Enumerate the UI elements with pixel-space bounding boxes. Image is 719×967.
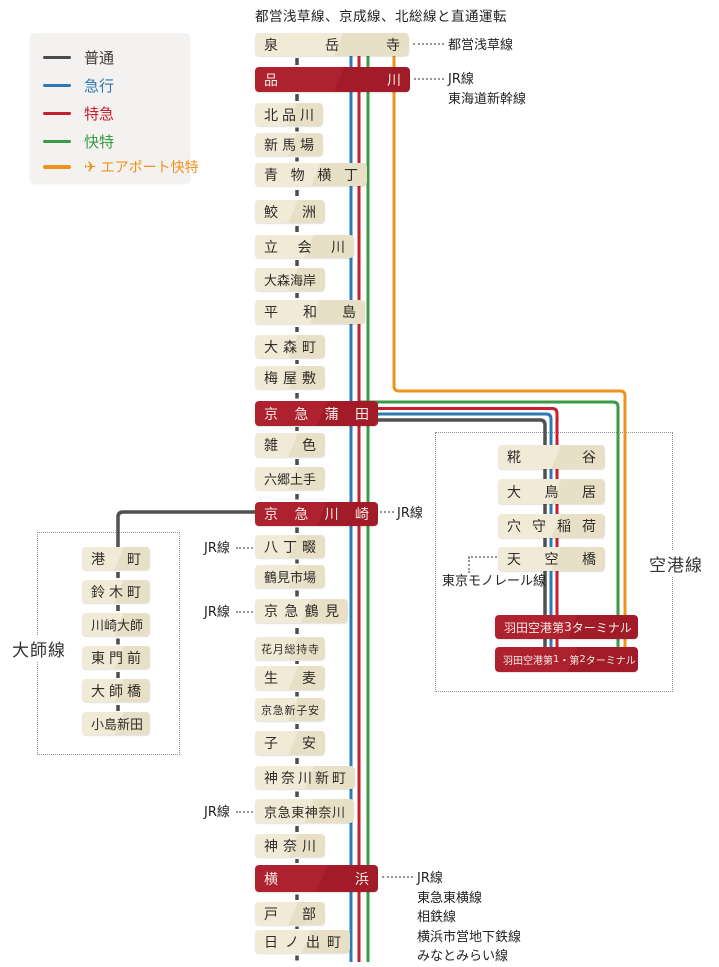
station-rokugodote: 六郷土手 bbox=[255, 467, 325, 490]
station-omorimachi: 大森町 bbox=[255, 335, 325, 358]
airport-line-label: 空港線 bbox=[645, 550, 707, 577]
station-hatchonawate: 八丁畷 bbox=[255, 535, 325, 558]
station-tobe: 戸部 bbox=[255, 902, 325, 925]
keikyu-tsurumi-jr-connector bbox=[236, 611, 253, 613]
hatchonawate-jr-connector bbox=[236, 547, 253, 549]
station-keikyu-kawasaki: 京急川崎 bbox=[255, 502, 378, 526]
station-kagetsu-sojiji: 花月総持寺 bbox=[255, 637, 325, 660]
station-samezu: 鮫洲 bbox=[255, 200, 325, 223]
yokohama-transfer-line-5: みなとみらい線 bbox=[417, 947, 521, 967]
station-keikyu-shinkoyasu: 京急新子安 bbox=[255, 698, 325, 721]
station-keikyu-tsurumi: 京急鶴見 bbox=[255, 599, 348, 623]
shinagawa-transfer-connector bbox=[414, 78, 444, 80]
yokohama-transfer-line-4: 横浜市営地下鉄線 bbox=[417, 928, 521, 948]
station-daishibashi: 大師橋 bbox=[82, 679, 150, 702]
sengakuji-transfer-note: 都営浅草線 bbox=[448, 36, 513, 56]
station-kojima-shinden: 小島新田 bbox=[82, 712, 150, 735]
station-keikyu-higashi-kanagawa: 京急東神奈川 bbox=[255, 799, 354, 823]
shinagawa-transfer-note: JR線 東海道新幹線 bbox=[448, 70, 526, 110]
keikyu-tsurumi-jr-note: JR線 bbox=[204, 603, 230, 623]
station-kanagawa: 神奈川 bbox=[255, 834, 325, 857]
station-shimbamba: 新馬場 bbox=[255, 133, 323, 156]
daishi-line-label: 大師線 bbox=[8, 635, 70, 662]
yokohama-transfer-line-1: JR線 bbox=[417, 869, 521, 889]
station-hinodecho: 日ノ出町 bbox=[255, 930, 350, 953]
higashi-kanagawa-jr-note: JR線 bbox=[204, 803, 230, 823]
station-kojiya: 糀谷 bbox=[498, 445, 605, 469]
monorail-transfer-note: 東京モノレール線 bbox=[442, 572, 546, 592]
station-namamugi: 生麦 bbox=[255, 666, 325, 690]
sengakuji-transfer-connector bbox=[413, 43, 444, 45]
yokohama-transfer-connector bbox=[382, 876, 413, 878]
station-suzukicho: 鈴木町 bbox=[82, 580, 150, 603]
station-haneda-terminal-1-2: 羽田空港第1・第2ターミナル bbox=[495, 647, 638, 672]
station-yokohama: 横浜 bbox=[255, 865, 378, 892]
station-umeyashiki: 梅屋敷 bbox=[255, 366, 325, 389]
station-omorikaigan: 大森海岸 bbox=[255, 268, 325, 291]
local-daishi-branch-path bbox=[118, 512, 257, 552]
station-sengakuji: 泉岳寺 bbox=[255, 33, 409, 56]
monorail-connector-horizontal bbox=[468, 556, 497, 558]
station-anamori-inari: 穴守稲荷 bbox=[498, 514, 605, 538]
station-tsurumi-ichiba: 鶴見市場 bbox=[255, 565, 325, 588]
station-zoshiki: 雑色 bbox=[255, 433, 325, 457]
kawasaki-transfer-connector bbox=[380, 511, 394, 513]
station-otorii: 大鳥居 bbox=[498, 479, 605, 504]
yokohama-transfer-note: JR線 東急東横線 相鉄線 横浜市営地下鉄線 みなとみらい線 bbox=[417, 869, 521, 967]
hatchonawate-jr-note: JR線 bbox=[204, 539, 230, 559]
keikyu-route-map: 都営浅草線、京成線、北総線と直通運転 普通 急行 特急 快特 ✈ エアポート快特 bbox=[0, 0, 719, 962]
station-aomono-yokocho: 青物横丁 bbox=[255, 163, 367, 186]
station-keikyu-kamata: 京急蒲田 bbox=[255, 401, 378, 426]
station-heiwajima: 平和島 bbox=[255, 300, 365, 324]
yokohama-transfer-line-3: 相鉄線 bbox=[417, 908, 521, 928]
rail-lines bbox=[0, 0, 719, 962]
station-kawasaki-daishi: 川崎大師 bbox=[82, 613, 150, 636]
shinagawa-transfer-line-2: 東海道新幹線 bbox=[448, 90, 526, 110]
station-higashi-monzen: 東門前 bbox=[82, 646, 150, 669]
station-haneda-terminal-3: 羽田空港第3ターミナル bbox=[495, 615, 638, 639]
station-shinagawa: 品川 bbox=[255, 67, 410, 92]
higashi-kanagawa-jr-connector bbox=[236, 811, 253, 813]
station-tenkubashi: 天空橋 bbox=[498, 547, 605, 571]
shinagawa-transfer-line-1: JR線 bbox=[448, 70, 526, 90]
station-tachiaigawa: 立会川 bbox=[255, 235, 354, 258]
station-minatocho: 港町 bbox=[82, 547, 150, 570]
station-kanagawa-shimmachi: 神奈川新町 bbox=[255, 766, 355, 789]
station-kitashinagawa: 北品川 bbox=[255, 103, 323, 126]
monorail-connector-vertical bbox=[468, 557, 470, 573]
kawasaki-transfer-note: JR線 bbox=[397, 504, 423, 524]
station-koyasu: 子安 bbox=[255, 731, 325, 755]
yokohama-transfer-line-2: 東急東横線 bbox=[417, 889, 521, 909]
